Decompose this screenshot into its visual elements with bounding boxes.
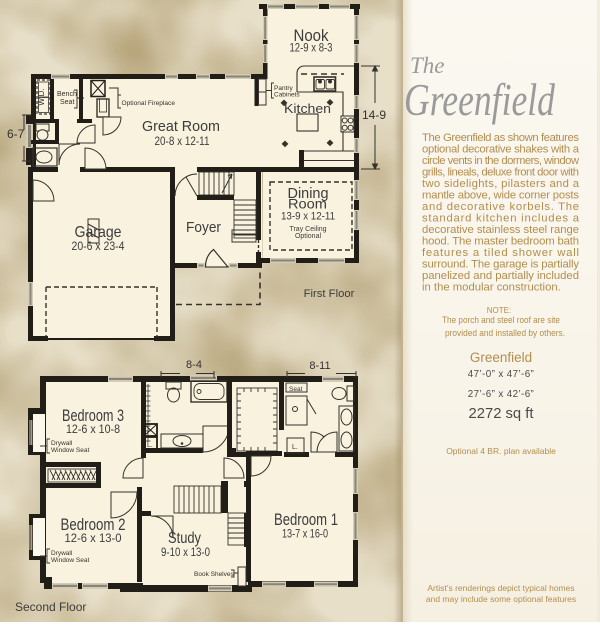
svg-text:L.: L. — [292, 444, 298, 451]
svg-text:Second Floor: Second Floor — [15, 600, 86, 614]
svg-text:decorative stainless steel: decorative stainless steel range — [422, 224, 579, 236]
svg-text:features a tiled shower wa: features a tiled shower wall — [422, 247, 579, 259]
svg-text:The porch and steel roof are s: The porch and steel roof are site — [442, 315, 560, 325]
svg-text:Greenfield: Greenfield — [404, 75, 555, 125]
svg-text:optional decorative shakes wit: optional decorative shakes with a — [422, 144, 580, 156]
svg-text:8-11: 8-11 — [309, 360, 330, 372]
svg-text:Seat: Seat — [289, 386, 303, 393]
svg-text:hood. The master bedroom bath: hood. The master bedroom bath — [422, 236, 579, 248]
svg-text:13-9 x 12-11: 13-9 x 12-11 — [281, 211, 335, 223]
svg-text:mantle above, wide corner post: mantle above, wide corner posts — [422, 190, 579, 202]
svg-text:Great Room: Great Room — [142, 119, 220, 135]
svg-text:Optional Fireplace: Optional Fireplace — [122, 100, 176, 107]
svg-text:provided and installed by othe: provided and installed by others. — [445, 328, 565, 338]
svg-text:Bench: Bench — [57, 91, 77, 98]
svg-text:Window Seat: Window Seat — [51, 557, 89, 564]
svg-text:Kitchen: Kitchen — [284, 101, 331, 116]
svg-text:27’-6” x 42’-6”: 27’-6” x 42’-6” — [468, 389, 534, 400]
svg-text:Room: Room — [288, 196, 327, 212]
svg-text:circle vents in the dormers, w: circle vents in the dormers, window — [422, 155, 580, 167]
svg-text:Artist’s renderings depict typ: Artist’s renderings depict typical homes — [427, 583, 574, 593]
svg-text:standard kitchen includes a: standard kitchen includes a — [422, 213, 580, 225]
svg-text:Optional 4 BR. plan available: Optional 4 BR. plan available — [446, 446, 556, 456]
svg-text:and decorative korbels. T: and decorative korbels. The — [422, 201, 579, 213]
svg-text:NOTE:: NOTE: — [487, 306, 511, 315]
svg-text:Drywall: Drywall — [51, 440, 73, 447]
svg-text:2272 sq ft: 2272 sq ft — [469, 406, 534, 422]
svg-text:14-9: 14-9 — [362, 108, 386, 122]
svg-text:20-8 x 12-11: 20-8 x 12-11 — [155, 134, 210, 148]
svg-text:Optional: Optional — [295, 233, 322, 240]
svg-text:surround. The garage is partia: surround. The garage is partially — [422, 259, 579, 271]
svg-text:Seat: Seat — [60, 99, 74, 106]
svg-text:8-4: 8-4 — [186, 359, 202, 371]
svg-text:47’-0” x 47’-6”: 47’-0” x 47’-6” — [468, 369, 534, 380]
svg-text:Cabinets: Cabinets — [274, 92, 300, 99]
svg-text:12-6 x 13-0: 12-6 x 13-0 — [65, 531, 122, 545]
svg-text:20-6 x 23-4: 20-6 x 23-4 — [72, 239, 125, 253]
svg-text:Foyer: Foyer — [186, 220, 221, 236]
svg-text:First Floor: First Floor — [304, 288, 355, 300]
svg-text:The Greenfield as shown featur: The Greenfield as shown features — [422, 132, 579, 144]
svg-text:panelized and partially includ: panelized and partially included — [422, 270, 579, 282]
svg-text:Greenfield: Greenfield — [470, 350, 532, 365]
svg-text:12-9 x 8-3: 12-9 x 8-3 — [290, 43, 333, 55]
svg-text:13-7 x 16-0: 13-7 x 16-0 — [282, 527, 328, 541]
svg-text:and may include some optional: and may include some optional features — [426, 594, 576, 604]
svg-text:Tray Ceiling: Tray Ceiling — [289, 226, 326, 233]
svg-text:12-6 x 10-8: 12-6 x 10-8 — [66, 422, 120, 436]
svg-text:Drywall: Drywall — [51, 550, 73, 557]
svg-text:L.: L. — [147, 442, 153, 449]
svg-text:9-10 x 13-0: 9-10 x 13-0 — [161, 545, 210, 559]
svg-text:Window Seat: Window Seat — [51, 447, 89, 454]
svg-text:in the modular construction.: in the modular construction. — [422, 282, 561, 294]
svg-text:two sidelights, pilasters a: two sidelights, pilasters and a — [422, 178, 580, 190]
svg-text:Book Shelves: Book Shelves — [194, 571, 234, 578]
svg-text:grills, lineals, deluxe front: grills, lineals, deluxe front door with — [422, 167, 579, 179]
svg-text:W.D.: W.D. — [37, 88, 46, 105]
svg-text:6-7: 6-7 — [7, 127, 25, 141]
